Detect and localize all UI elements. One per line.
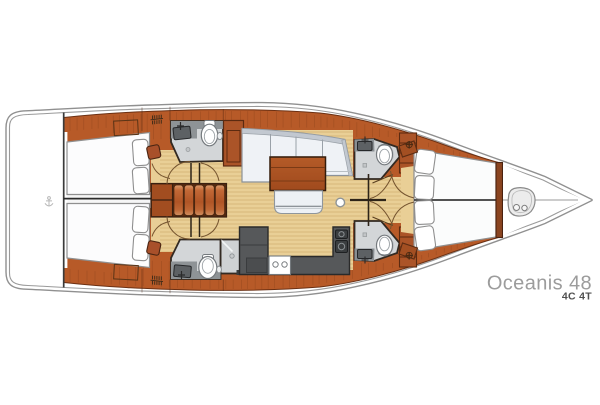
svg-text:4C 4T: 4C 4T [562,291,592,303]
